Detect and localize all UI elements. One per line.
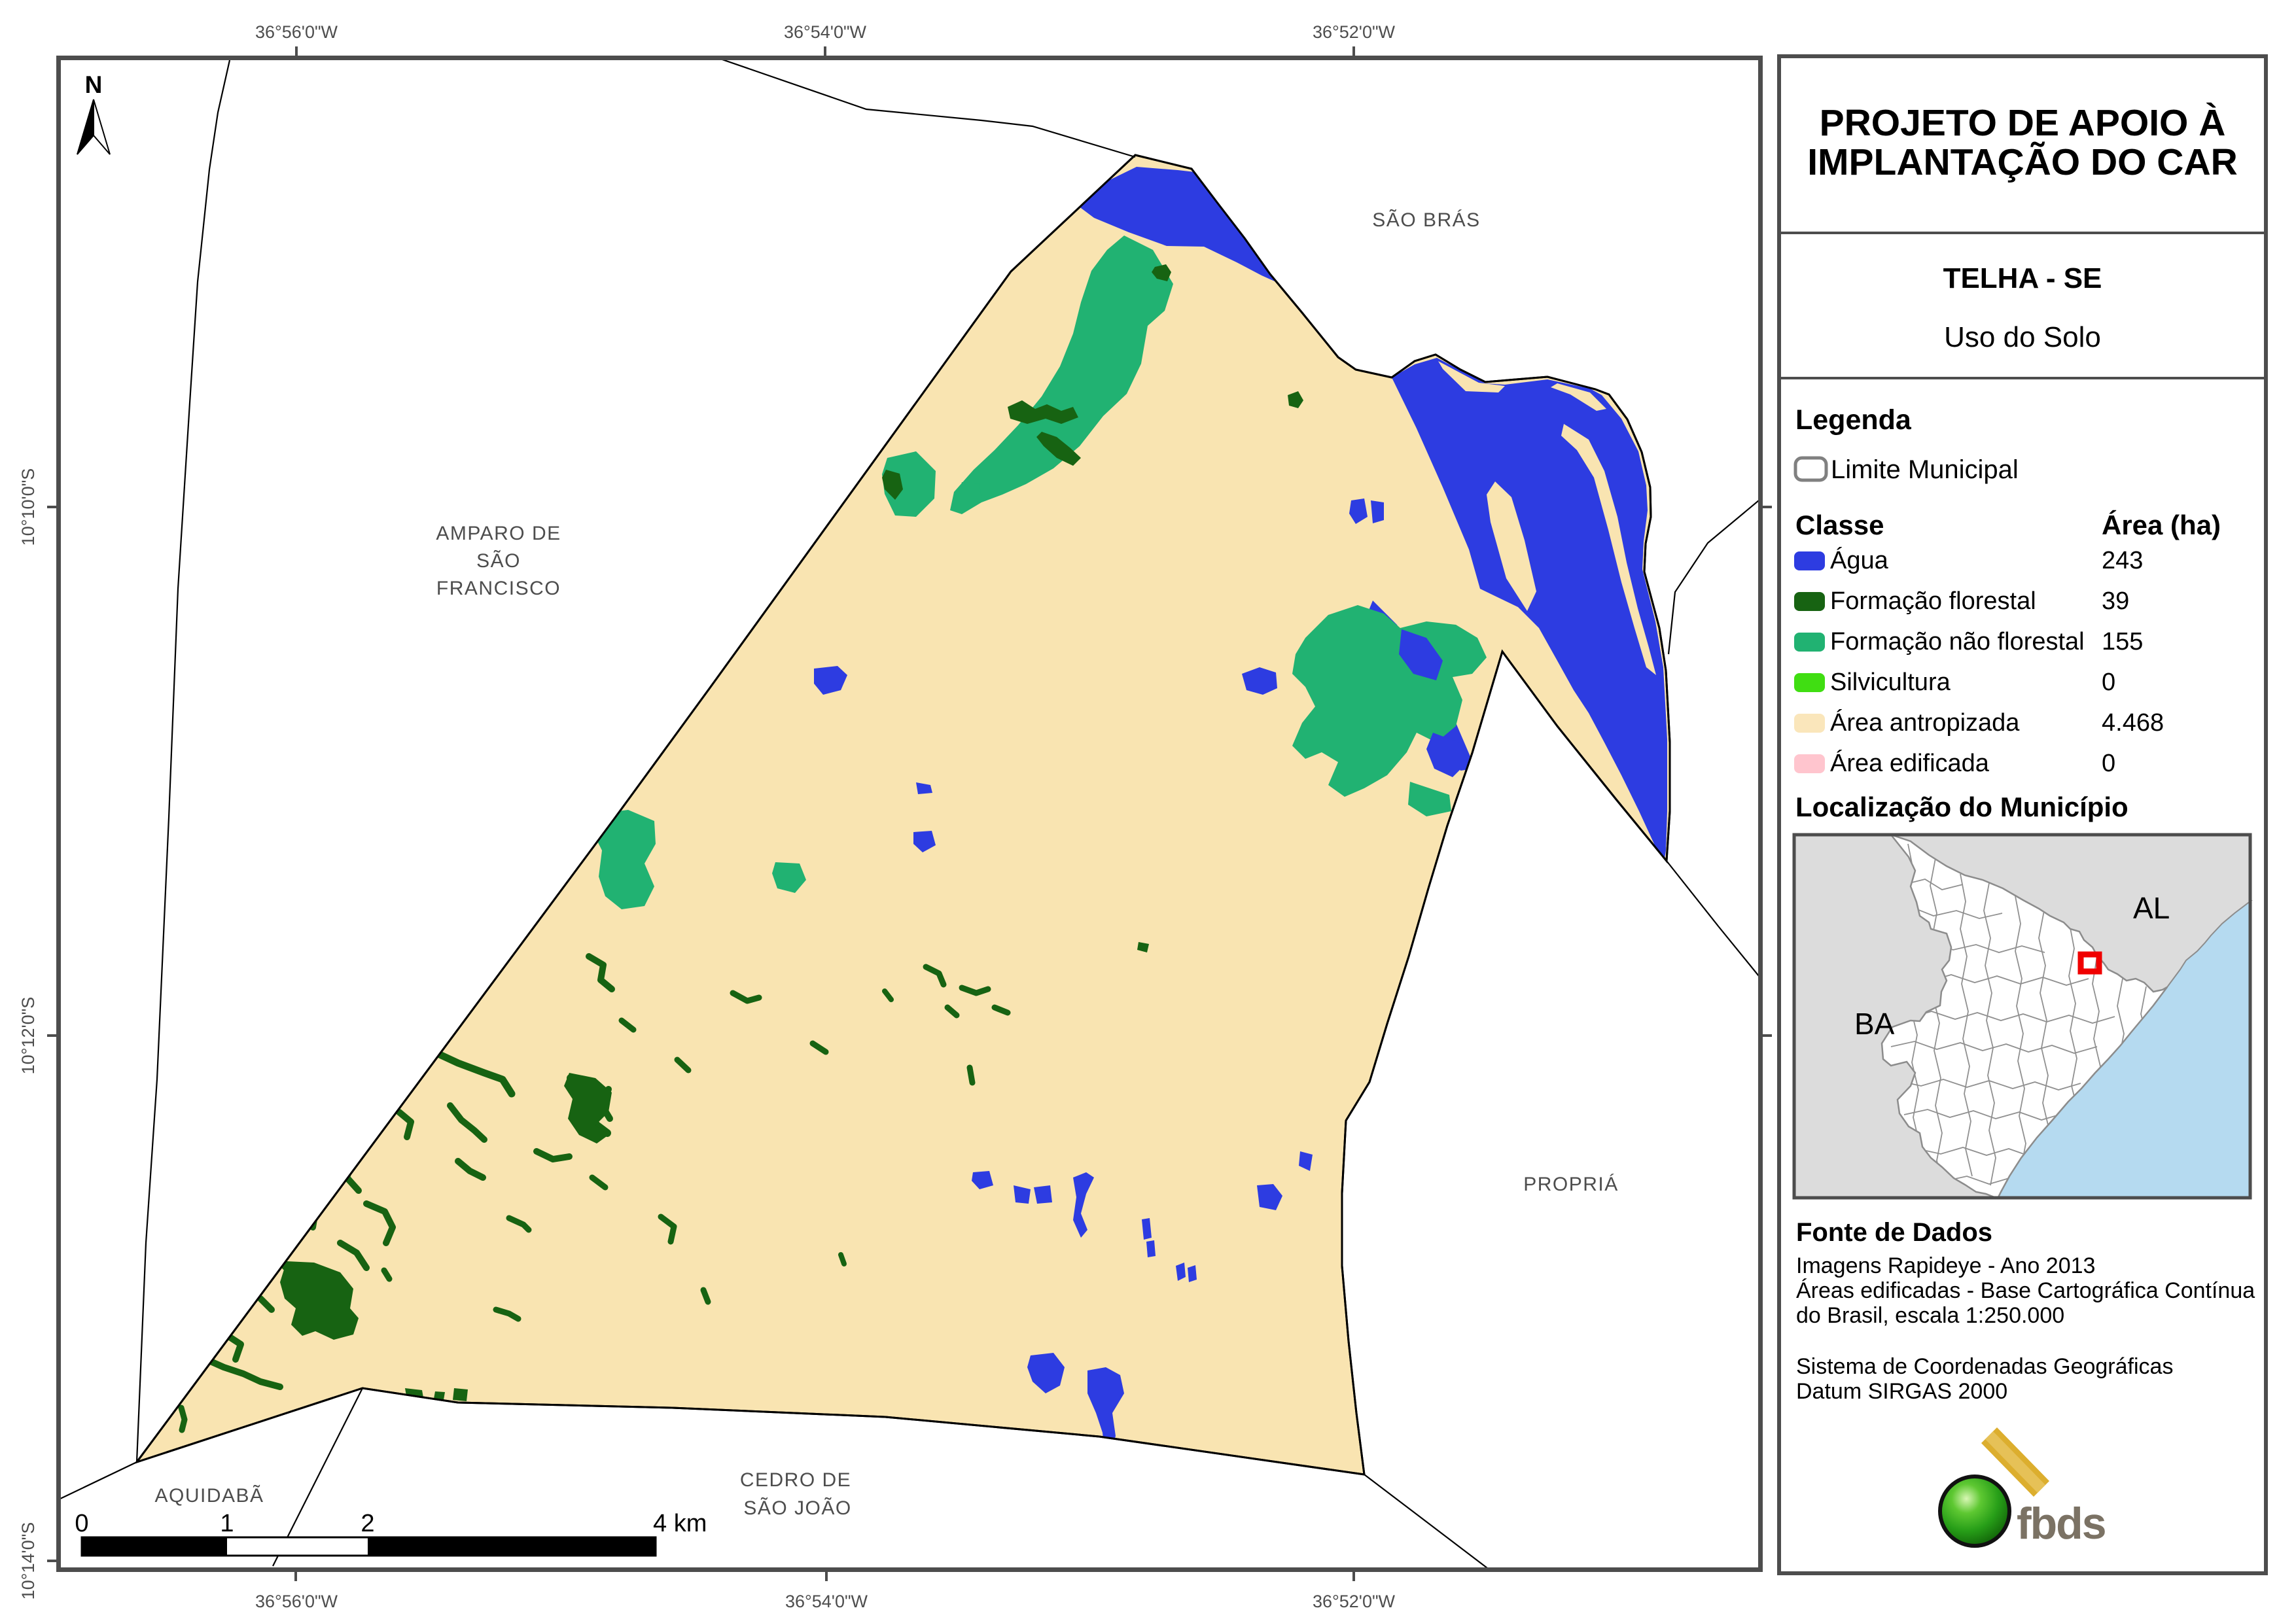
- svg-text:36°56'0"W: 36°56'0"W: [255, 1592, 338, 1611]
- svg-text:Área antropizada: Área antropizada: [1830, 708, 2020, 737]
- svg-text:PROJETO DE APOIO À: PROJETO DE APOIO À: [1820, 102, 2226, 144]
- svg-text:SÃO JOÃO: SÃO JOÃO: [743, 1497, 851, 1519]
- svg-text:Silvicultura: Silvicultura: [1830, 669, 1951, 696]
- svg-text:Áreas edificadas - Base Cartog: Áreas edificadas - Base Cartográfica Con…: [1796, 1278, 2255, 1303]
- svg-text:Sistema de Coordenadas Geográf: Sistema de Coordenadas Geográficas: [1796, 1354, 2173, 1379]
- svg-text:AL: AL: [2133, 891, 2170, 925]
- svg-text:fbds: fbds: [2017, 1499, 2106, 1548]
- svg-text:N: N: [85, 71, 103, 98]
- svg-text:10°14'0"S: 10°14'0"S: [18, 1522, 38, 1600]
- svg-text:10°10'0"S: 10°10'0"S: [18, 468, 38, 546]
- svg-text:0: 0: [2102, 669, 2115, 696]
- svg-text:do Brasil, escala 1:250.000: do Brasil, escala 1:250.000: [1796, 1303, 2064, 1328]
- svg-text:SÃO BRÁS: SÃO BRÁS: [1372, 209, 1480, 231]
- svg-text:0: 0: [2102, 750, 2115, 777]
- svg-text:Datum SIRGAS 2000: Datum SIRGAS 2000: [1796, 1379, 2007, 1404]
- svg-text:Fonte de Dados: Fonte de Dados: [1796, 1218, 1992, 1247]
- svg-text:BA: BA: [1854, 1007, 1895, 1041]
- svg-text:Limite Municipal: Limite Municipal: [1831, 455, 2019, 484]
- svg-text:AMPARO DE: AMPARO DE: [436, 523, 561, 544]
- svg-text:Uso do Solo: Uso do Solo: [1944, 321, 2101, 353]
- svg-text:36°52'0"W: 36°52'0"W: [1313, 22, 1396, 42]
- svg-text:TELHA - SE: TELHA - SE: [1943, 262, 2102, 294]
- svg-text:Área edificada: Área edificada: [1830, 749, 1990, 777]
- svg-text:Água: Água: [1830, 546, 1889, 574]
- svg-text:36°56'0"W: 36°56'0"W: [255, 22, 338, 42]
- svg-text:CEDRO DE: CEDRO DE: [740, 1469, 851, 1491]
- svg-text:SÃO: SÃO: [476, 550, 521, 572]
- svg-text:155: 155: [2102, 628, 2143, 655]
- svg-text:Formação não florestal: Formação não florestal: [1830, 628, 2085, 655]
- svg-text:36°54'0"W: 36°54'0"W: [785, 1592, 868, 1611]
- svg-text:0: 0: [75, 1510, 88, 1537]
- svg-text:PROPRIÁ: PROPRIÁ: [1523, 1174, 1619, 1195]
- svg-text:Imagens Rapideye - Ano 2013: Imagens Rapideye - Ano 2013: [1796, 1253, 2095, 1278]
- svg-text:Localização do Município: Localização do Município: [1795, 792, 2128, 822]
- svg-text:IMPLANTAÇÃO DO CAR: IMPLANTAÇÃO DO CAR: [1807, 141, 2238, 183]
- svg-text:2: 2: [361, 1510, 374, 1537]
- svg-text:Formação florestal: Formação florestal: [1830, 587, 2036, 615]
- svg-text:39: 39: [2102, 587, 2129, 615]
- svg-text:1: 1: [220, 1510, 234, 1537]
- svg-text:36°54'0"W: 36°54'0"W: [784, 22, 867, 42]
- svg-text:4 km: 4 km: [653, 1510, 707, 1537]
- svg-text:Legenda: Legenda: [1795, 404, 1912, 436]
- svg-text:10°12'0"S: 10°12'0"S: [18, 997, 38, 1075]
- svg-text:AQUIDABÃ: AQUIDABÃ: [154, 1484, 264, 1507]
- svg-text:243: 243: [2102, 547, 2143, 574]
- svg-text:Área (ha): Área (ha): [2102, 510, 2221, 540]
- svg-text:4.468: 4.468: [2102, 709, 2164, 737]
- svg-text:36°52'0"W: 36°52'0"W: [1313, 1592, 1396, 1611]
- svg-text:FRANCISCO: FRANCISCO: [436, 578, 561, 599]
- svg-text:Classe: Classe: [1795, 510, 1884, 540]
